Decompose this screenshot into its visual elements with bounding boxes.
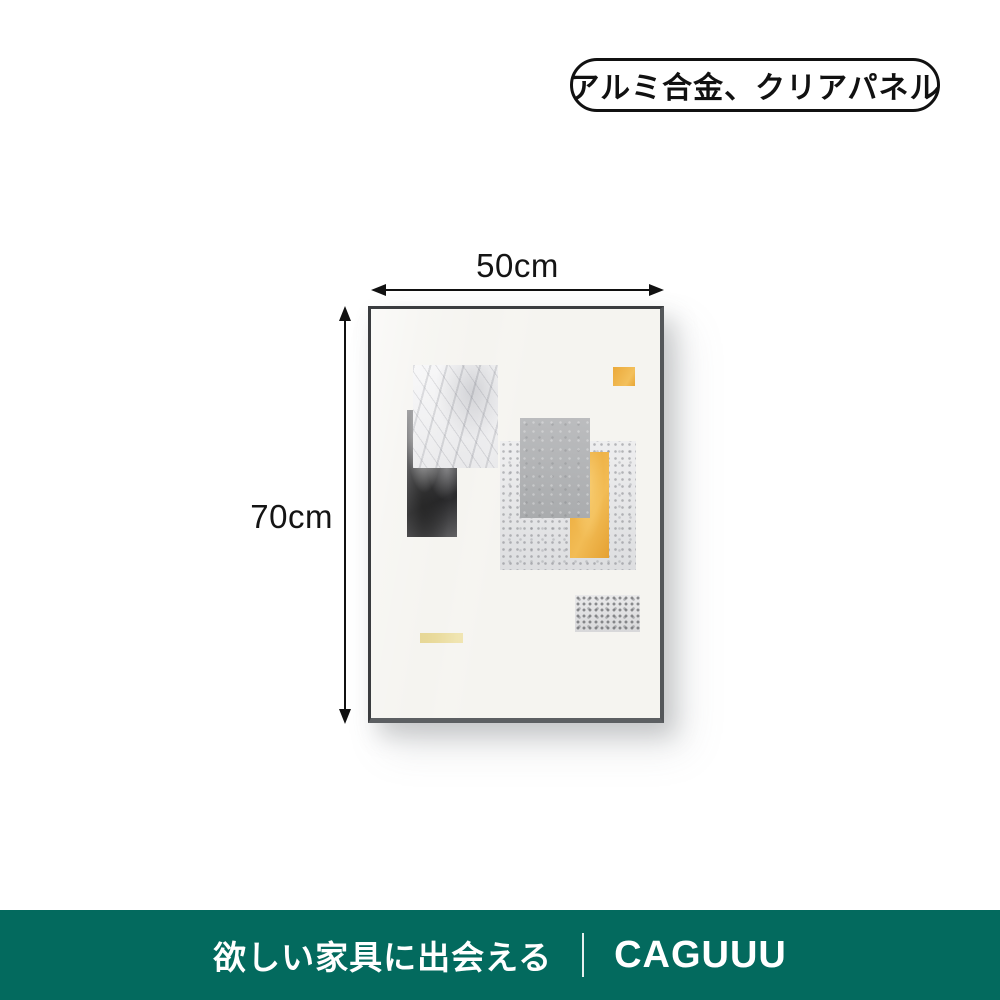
width-dimension-label: 50cm (371, 247, 664, 285)
footer-divider (582, 933, 584, 977)
footer-tagline: 欲しい家具に出会える (213, 931, 552, 979)
height-arrow-line (344, 313, 346, 717)
height-arrow (339, 306, 351, 724)
material-badge-label: アルミ合金、クリアパネル (569, 63, 940, 107)
art-concrete-rect (520, 418, 590, 518)
art-small-gray-rect (575, 595, 640, 632)
poster-frame (368, 306, 664, 723)
material-badge: アルミ合金、クリアパネル (570, 58, 940, 112)
brand-logo: CAGUUU (614, 934, 787, 977)
product-image: アルミ合金、クリアパネル 50cm 70cm 欲しい家具に出会える CAGUUU (0, 0, 1000, 1000)
width-arrow-line (378, 289, 657, 291)
poster-mat (371, 309, 660, 718)
height-dimension-label: 70cm (205, 498, 333, 536)
art-white-marble-rect (413, 365, 498, 468)
art-pale-yellow-strip (420, 633, 463, 643)
art-small-gold-rect (613, 367, 635, 386)
arrow-head-down-icon (339, 709, 351, 724)
footer-banner: 欲しい家具に出会える CAGUUU (0, 910, 1000, 1000)
arrow-head-right-icon (649, 284, 664, 296)
width-arrow (371, 284, 664, 296)
